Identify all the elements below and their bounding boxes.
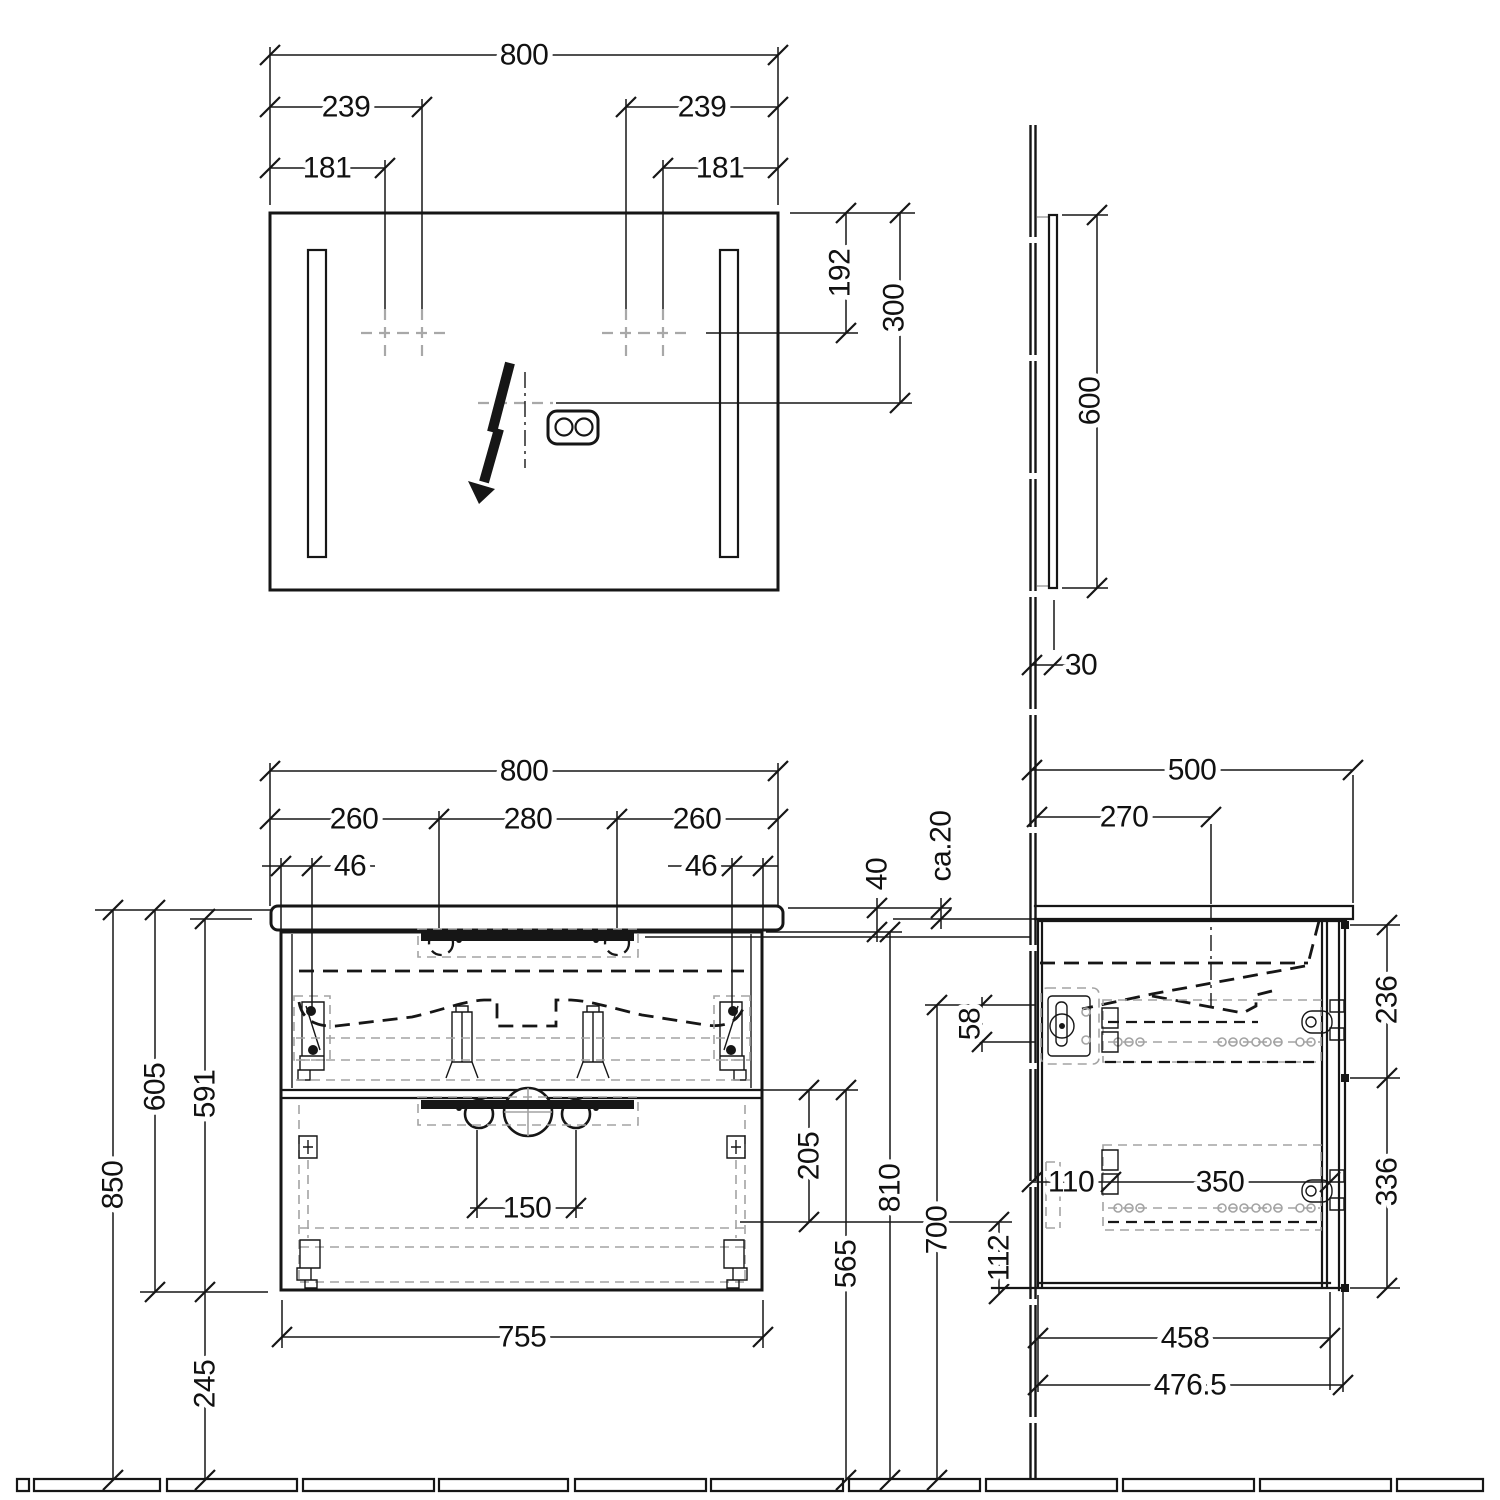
dim-mirror-width: 800 bbox=[500, 39, 549, 72]
dim-upper-front: 236 bbox=[1371, 976, 1404, 1025]
basin-mounting-brackets bbox=[446, 1006, 609, 1078]
dim-350: 350 bbox=[1196, 1166, 1245, 1199]
dim-lower-front: 336 bbox=[1371, 1158, 1404, 1207]
dim-700: 700 bbox=[921, 1206, 954, 1255]
dim-body-width: 755 bbox=[498, 1321, 547, 1354]
vanity-front-extension-lines bbox=[95, 763, 1035, 1348]
drain-and-supply-pipes bbox=[465, 1088, 590, 1136]
drawer-slide-bracket-lower-left bbox=[297, 1136, 320, 1288]
washbasin-top-front bbox=[271, 906, 783, 930]
vanity-side-dimension-lines bbox=[1032, 770, 1387, 1385]
technical-drawing-page: 800 239 239 181 181 192 300 600 30 bbox=[0, 0, 1500, 1500]
dim-mirror-lamp-drop: 192 bbox=[824, 249, 857, 298]
socket-outlet-icon bbox=[548, 411, 598, 444]
dim-vanity-width: 800 bbox=[500, 755, 549, 788]
basin-bowl-outline bbox=[299, 1000, 745, 1026]
dim-mirror-239-left: 239 bbox=[322, 91, 371, 124]
dim-mirror-socket-drop: 300 bbox=[878, 284, 911, 333]
led-strip-left bbox=[308, 250, 326, 557]
washbasin-top-side bbox=[1035, 906, 1353, 919]
dim-gap-ca20: ca.20 bbox=[925, 811, 958, 882]
dim-inset-right: 46 bbox=[685, 850, 717, 883]
mirror-side-view: 600 30 bbox=[1022, 125, 1108, 1479]
technical-drawing-canvas: 800 239 239 181 181 192 300 600 30 bbox=[0, 0, 1500, 1500]
dim-58: 58 bbox=[954, 1008, 987, 1040]
dim-565: 565 bbox=[830, 1240, 863, 1289]
dim-mirror-181-right: 181 bbox=[696, 152, 745, 185]
cabinet-body-side bbox=[992, 921, 1346, 1290]
mirror-front-view: 800 239 239 181 181 192 300 bbox=[260, 39, 915, 591]
handle-upper-drawer bbox=[418, 929, 638, 957]
drawer-slide-bracket-lower-right bbox=[724, 1136, 747, 1288]
wall-line bbox=[1031, 125, 1036, 1479]
dim-top-thickness: 40 bbox=[861, 858, 894, 890]
dim-seg-mid: 280 bbox=[504, 803, 553, 836]
dim-mirror-depth: 30 bbox=[1065, 649, 1097, 682]
vanity-front-view: 800 260 280 260 46 46 40 ca.20 58 850 60… bbox=[95, 755, 1035, 1491]
dim-591: 591 bbox=[189, 1070, 222, 1119]
dim-605: 605 bbox=[139, 1063, 172, 1112]
wall-mounting-bracket bbox=[1041, 988, 1099, 1064]
vanity-side-dimension-ticks bbox=[1022, 760, 1397, 1395]
dim-mirror-181-left: 181 bbox=[303, 152, 352, 185]
dim-476-5: 476.5 bbox=[1154, 1369, 1227, 1402]
dim-110: 110 bbox=[1048, 1166, 1094, 1199]
lamp-position-markers bbox=[361, 309, 687, 357]
dim-112: 112 bbox=[983, 1235, 1016, 1281]
mirror-profile bbox=[1049, 215, 1057, 588]
dim-clearance: 245 bbox=[189, 1360, 222, 1409]
dim-205: 205 bbox=[793, 1132, 826, 1181]
vanity-side-view: 500 270 236 336 110 350 458 476.5 bbox=[992, 754, 1404, 1402]
dim-depth: 500 bbox=[1168, 754, 1217, 787]
dim-458: 458 bbox=[1161, 1322, 1210, 1355]
lightning-bolt-icon bbox=[468, 363, 510, 504]
floor-line bbox=[17, 1479, 1483, 1491]
mirror-frame bbox=[270, 213, 778, 590]
dim-faucet-center: 270 bbox=[1100, 801, 1149, 834]
dim-mirror-239-right: 239 bbox=[678, 91, 727, 124]
dim-mirror-height: 600 bbox=[1074, 377, 1107, 426]
dim-810: 810 bbox=[874, 1164, 907, 1213]
dim-seg-left: 260 bbox=[330, 803, 379, 836]
dim-total-height: 850 bbox=[97, 1161, 130, 1210]
dim-drain-span: 150 bbox=[503, 1192, 552, 1225]
dim-seg-right: 260 bbox=[673, 803, 722, 836]
mirror-side-dimension-lines bbox=[1032, 215, 1100, 665]
dim-inset-left: 46 bbox=[334, 850, 366, 883]
